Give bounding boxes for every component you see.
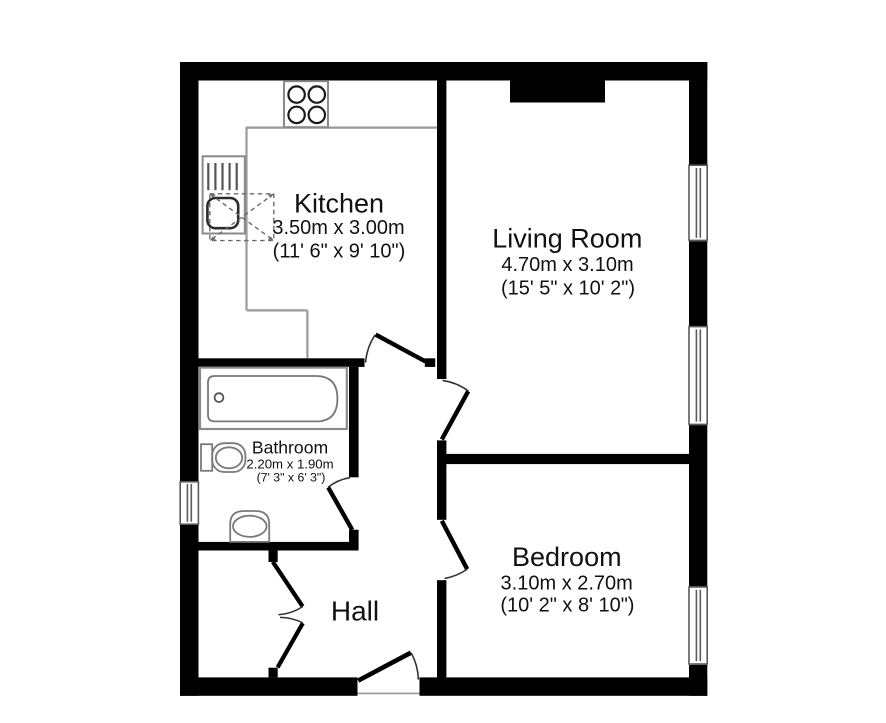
svg-text:Hall: Hall (331, 595, 379, 626)
svg-text:(10' 2" x 8' 10"): (10' 2" x 8' 10") (500, 595, 634, 617)
svg-text:3.10m x 2.70m: 3.10m x 2.70m (501, 572, 633, 594)
svg-text:(7' 3" x 6' 3"): (7' 3" x 6' 3") (257, 470, 326, 484)
svg-text:(11' 6" x 9' 10"): (11' 6" x 9' 10") (273, 241, 406, 263)
svg-text:2.20m x 1.90m: 2.20m x 1.90m (246, 456, 333, 471)
svg-text:4.70m x 3.10m: 4.70m x 3.10m (501, 254, 633, 276)
svg-text:(15' 5" x 10' 2"): (15' 5" x 10' 2") (501, 277, 635, 299)
svg-text:Bathroom: Bathroom (252, 438, 328, 458)
svg-text:Bedroom: Bedroom (512, 542, 622, 572)
svg-text:Living Room: Living Room (492, 224, 642, 254)
svg-text:3.50m x 3.00m: 3.50m x 3.00m (272, 217, 404, 239)
svg-text:Kitchen: Kitchen (294, 189, 384, 219)
